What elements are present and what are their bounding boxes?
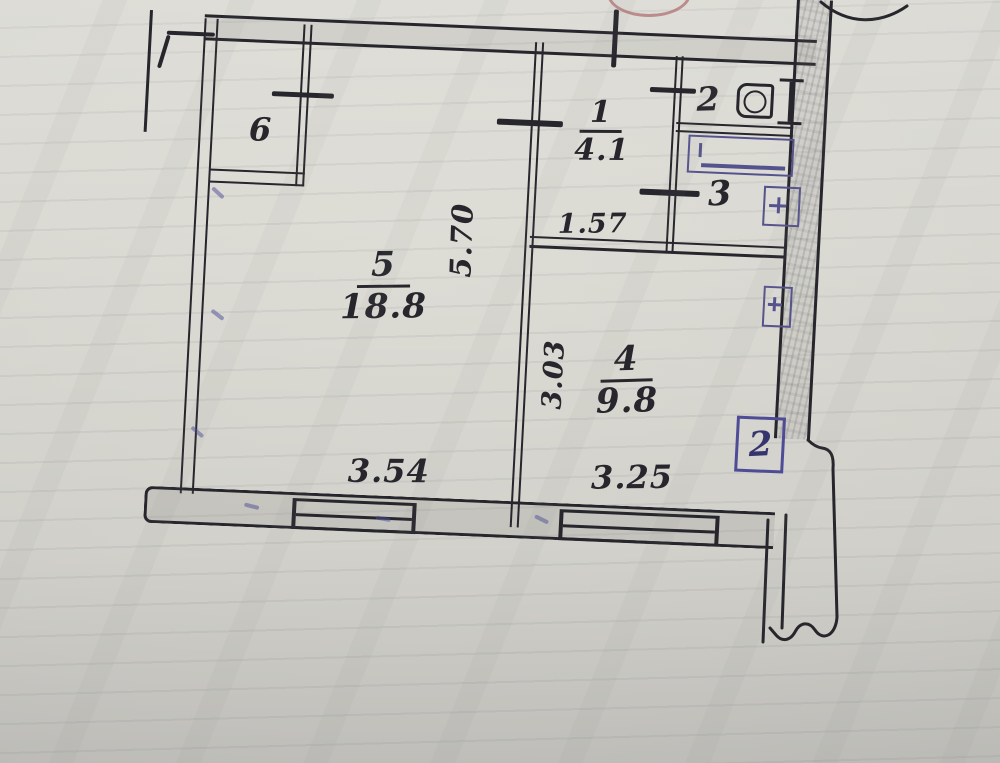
wall-right-extension — [144, 10, 153, 132]
blue-pen-dash — [211, 186, 224, 199]
toilet-bowl-icon — [736, 83, 775, 119]
door-tick-room3 — [639, 189, 699, 197]
wall-closet-bottom — [209, 169, 305, 187]
window-icon-room5 — [291, 498, 417, 534]
room-number: 4 — [600, 341, 653, 382]
room-number: 1 — [580, 97, 623, 133]
wall-top — [204, 14, 817, 66]
dim-5-70: 5.70 — [443, 197, 480, 284]
wall-middle-partition — [510, 42, 544, 527]
room-5-label: 5 18.8 — [336, 247, 431, 326]
room-4-label: 4 9.8 — [586, 341, 667, 421]
room-area: 4.1 — [564, 133, 637, 167]
corner-hook — [157, 35, 171, 69]
room-number: 5 — [357, 248, 410, 288]
wall-break-lines — [730, 370, 925, 670]
dim-1-57: 1.57 — [558, 208, 628, 240]
room-3-label: 3 — [707, 173, 734, 214]
corner-tick — [167, 31, 215, 37]
room-2-label: 2 — [696, 79, 721, 119]
bathtub-icon — [687, 135, 795, 177]
room-1-label: 1 4.1 — [564, 97, 637, 168]
toilet-tank-icon — [777, 78, 803, 125]
dim-3-03: 3.03 — [536, 334, 571, 415]
wall-hook-line — [815, 0, 915, 36]
window-icon-room4 — [558, 509, 720, 547]
toilet-icon — [733, 77, 808, 130]
vent-icon — [762, 286, 793, 328]
dim-3-25: 3.25 — [574, 458, 689, 497]
washbasin-icon — [762, 186, 801, 227]
wall-closet-right — [295, 24, 312, 186]
room-area: 9.8 — [587, 382, 668, 422]
wall-hallway-right — [665, 56, 683, 252]
room-area: 18.8 — [336, 288, 431, 326]
door-tick-room2 — [650, 87, 696, 94]
room-6-label: 6 — [249, 111, 273, 149]
blue-pen-dash — [211, 309, 225, 321]
red-pen-mark — [607, 0, 691, 17]
floor-plan-photo: 2 5 18.8 4 9.8 1 4.1 2 3 6 3.54 5.70 3.2… — [0, 0, 1000, 763]
wall-left — [180, 18, 219, 494]
dim-3-54: 3.54 — [331, 452, 447, 491]
